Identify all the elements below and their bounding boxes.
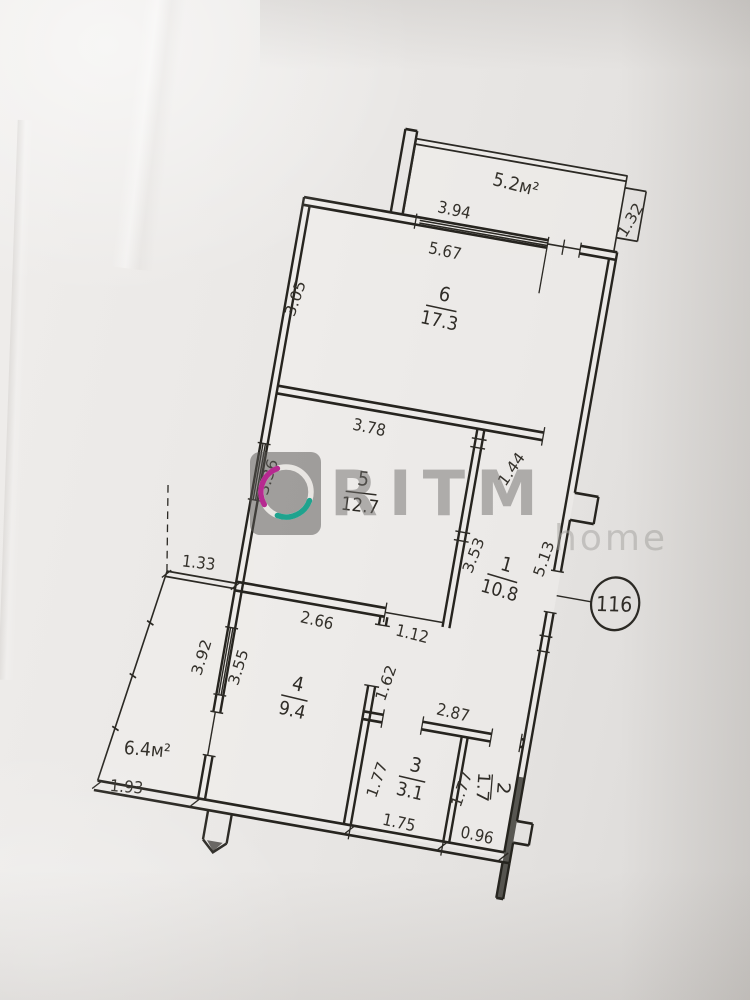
floorplan-svg: 3.94 1.32 5.67 3.05 3.78 1.44 3.36 3.53 …	[0, 0, 750, 1000]
dim-balcony-left-bottom: 1.93	[109, 775, 144, 797]
room2-number: 2	[492, 781, 514, 795]
watermark-word-text: home	[554, 518, 668, 559]
room2-area: 1.7	[471, 772, 493, 803]
watermark-brand-text: RITM	[330, 457, 549, 530]
unit-badge: 116	[552, 568, 643, 634]
balcony-left-area: 6.4м²	[123, 737, 172, 763]
badge-leader-line	[557, 596, 591, 602]
axis-dash-line	[153, 485, 182, 572]
floorplan-photo: 3.94 1.32 5.67 3.05 3.78 1.44 3.36 3.53 …	[0, 0, 750, 1000]
unit-number: 116	[595, 591, 633, 617]
dim-balcony-left-top: 1.33	[181, 551, 217, 575]
